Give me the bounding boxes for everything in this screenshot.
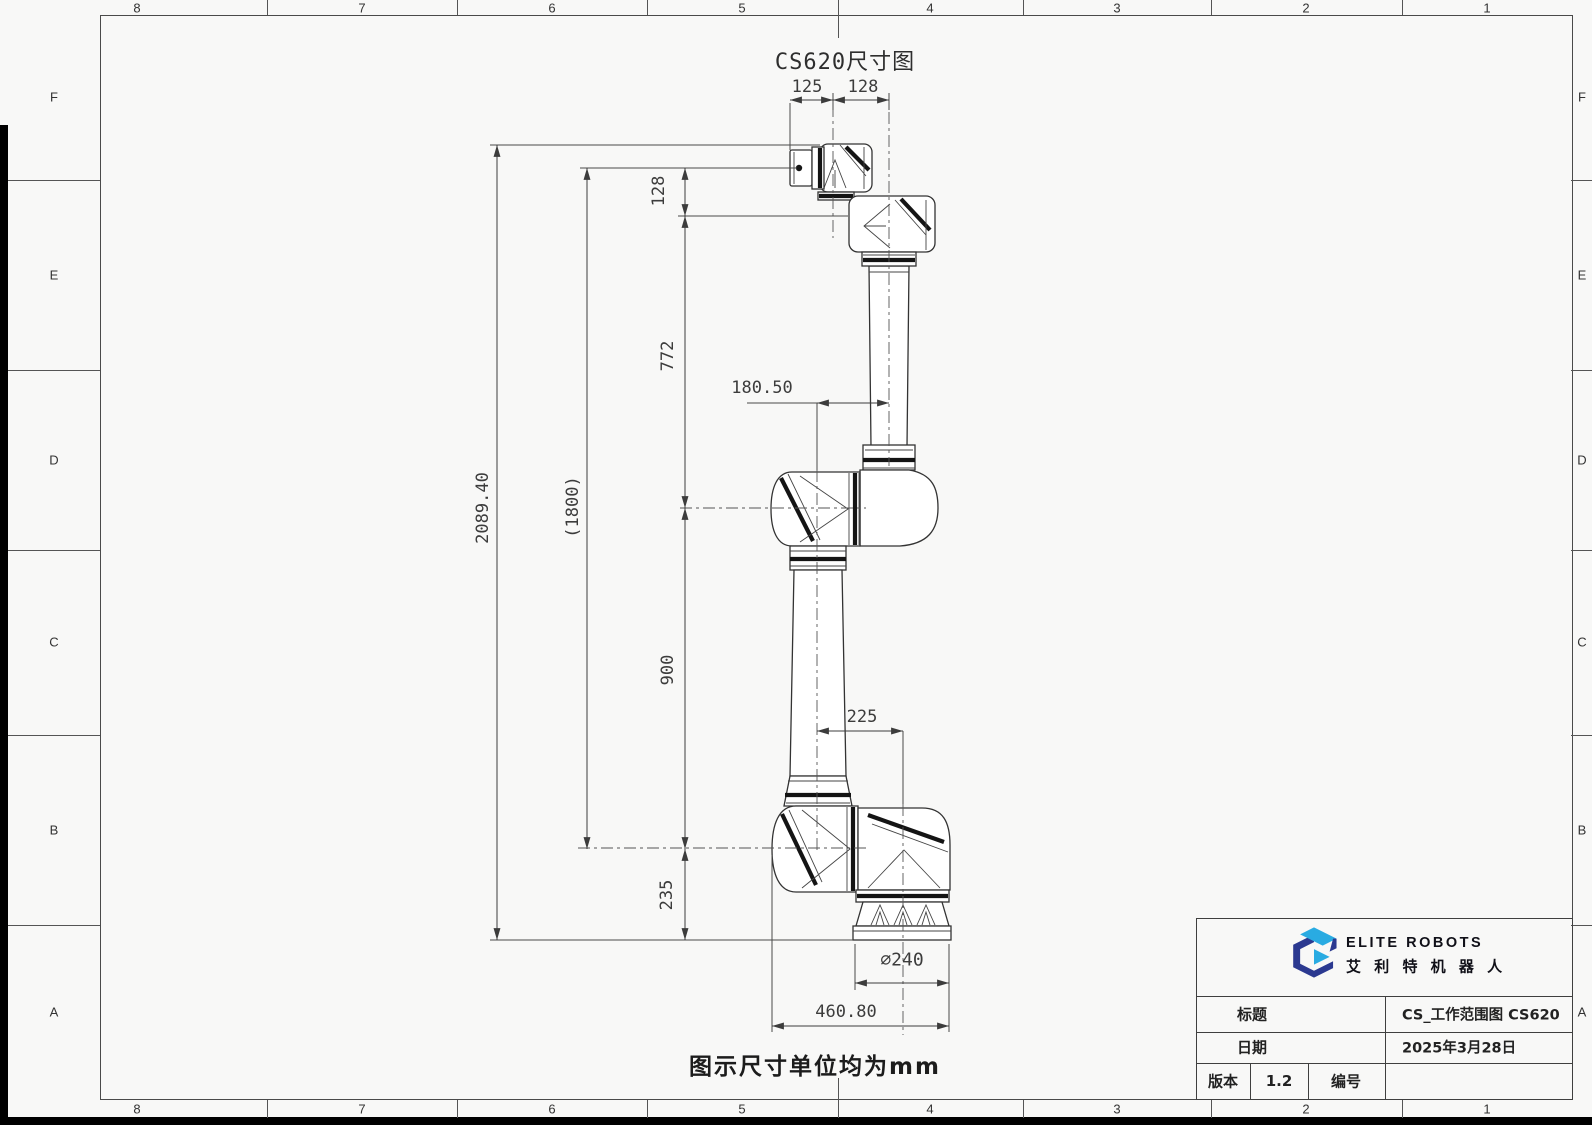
robot-base-joint	[858, 808, 950, 890]
field-title-label: 标题	[1237, 1004, 1267, 1025]
dim-label-180-50: 180.50	[731, 378, 792, 398]
field-version-value: 1.2	[1266, 1072, 1293, 1090]
unit-note: 图示尺寸单位均为mm	[689, 1047, 941, 1081]
dim-label-225: 225	[847, 707, 878, 727]
dim-label-1800: (1800)	[563, 476, 583, 537]
dim-label-460-80: 460.80	[815, 1002, 876, 1022]
brand-name-en: ELITE ROBOTS	[1346, 935, 1483, 951]
title-block-divider	[1308, 1063, 1309, 1100]
drawing-sheet: 8 7 6 5 4 3 2 1 8 7 6 5 4 3 2 1 F E D C …	[0, 0, 1592, 1125]
drawing-title: CS620尺寸图	[775, 44, 915, 76]
field-number-label: 编号	[1331, 1071, 1361, 1092]
robot-wrist-assembly	[790, 144, 935, 266]
dim-label-dia240: ∅240	[880, 950, 923, 971]
dim-label-900: 900	[658, 655, 678, 686]
dim-label-2089-40: 2089.40	[473, 472, 493, 544]
brand-name-cn: 艾 利 特 机 器 人	[1346, 956, 1506, 977]
title-block-divider	[1385, 996, 1386, 1100]
robot-base-pedestal	[853, 890, 951, 940]
dim-label-772: 772	[658, 341, 678, 372]
dim-label-128-side: 128	[649, 176, 669, 207]
elite-robots-logo-icon	[1288, 925, 1340, 987]
title-block-divider	[1250, 1063, 1251, 1100]
robot-shoulder-joint	[772, 806, 858, 892]
dim-label-235: 235	[657, 880, 677, 911]
field-date-label: 日期	[1237, 1037, 1267, 1058]
robot-upper-arm-tube	[784, 546, 852, 806]
dim-label-128-top: 128	[848, 77, 879, 97]
dim-label-125: 125	[792, 77, 823, 97]
field-date-value: 2025年3月28日	[1402, 1037, 1516, 1058]
field-title-value: CS_工作范围图 CS620	[1402, 1004, 1560, 1025]
field-version-label: 版本	[1208, 1071, 1238, 1092]
